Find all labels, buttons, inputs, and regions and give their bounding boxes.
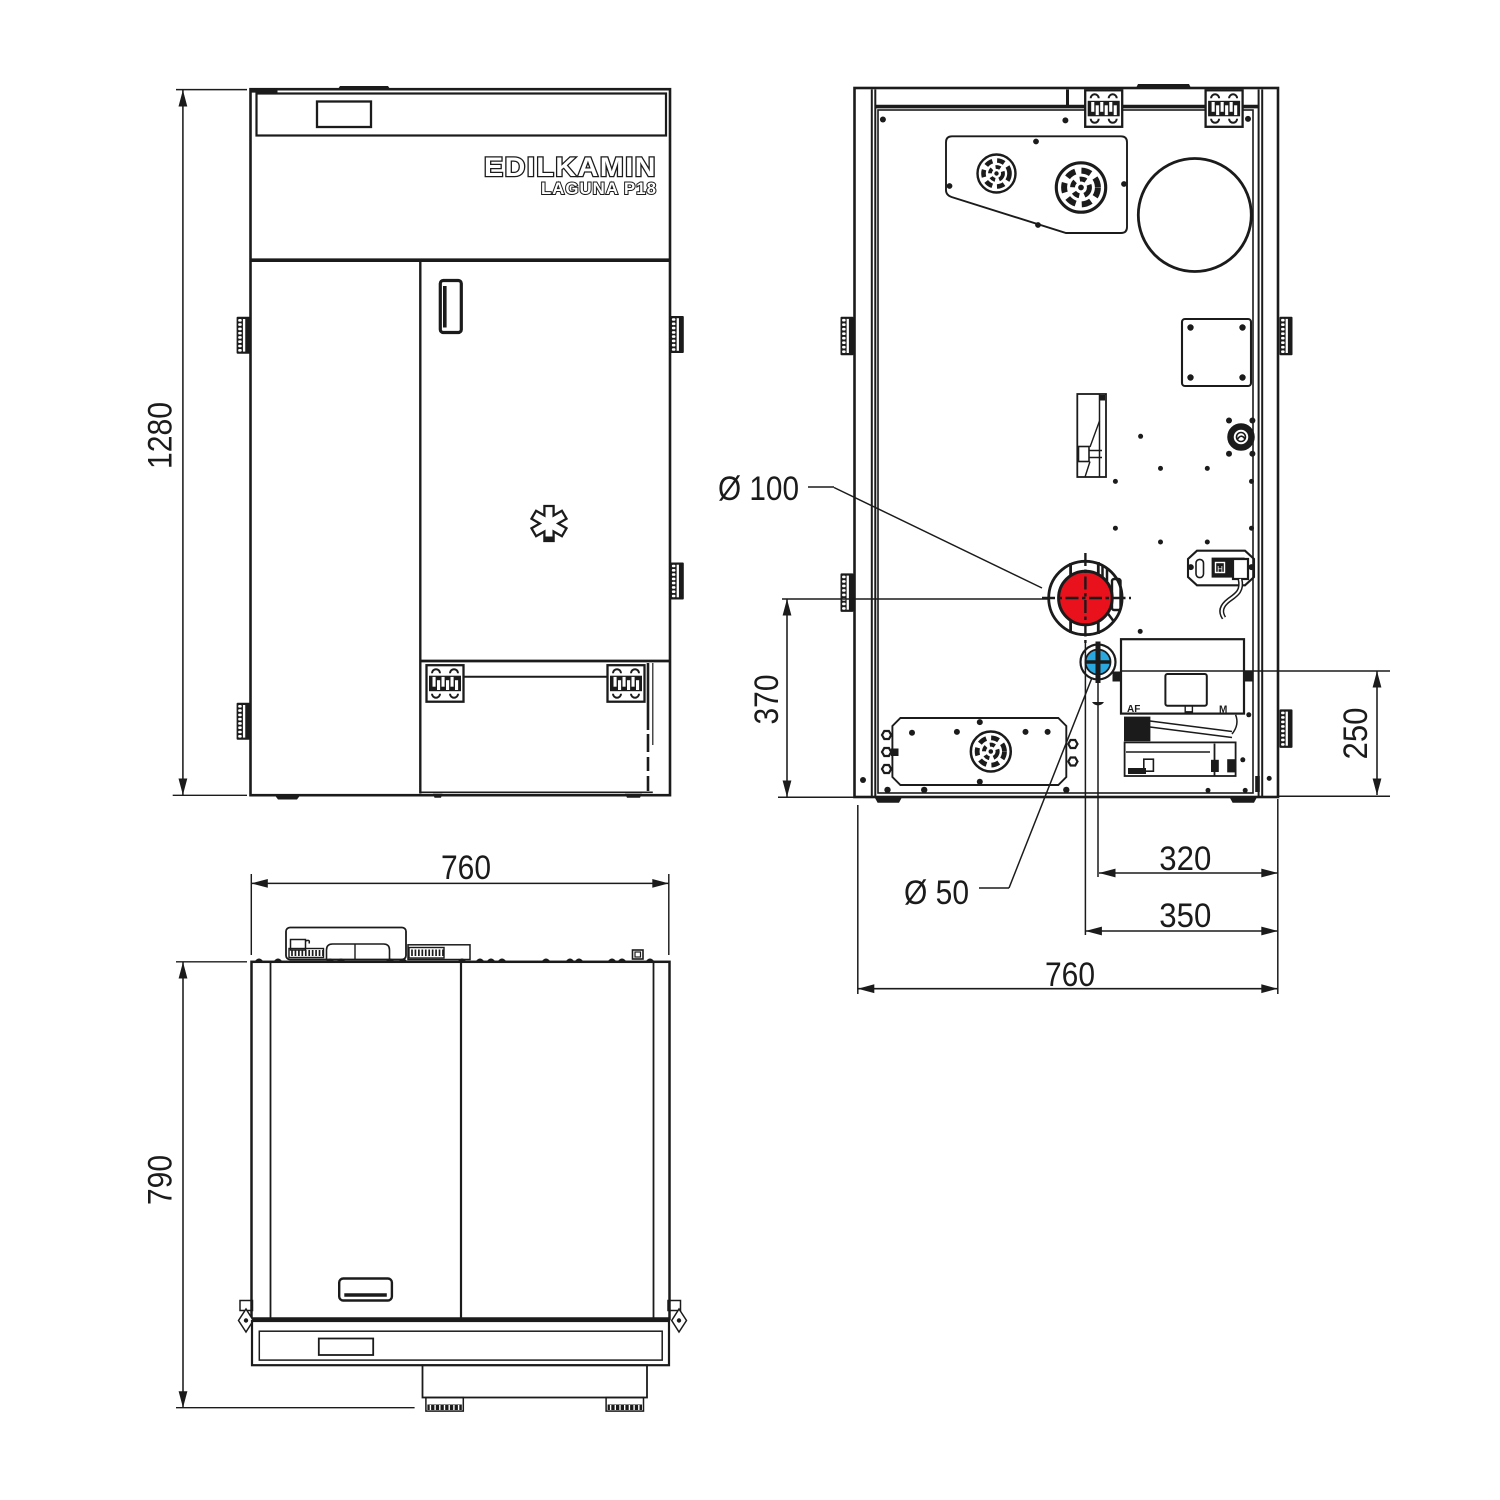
svg-text:760: 760 [441, 849, 491, 887]
svg-text:AF: AF [1127, 704, 1140, 715]
svg-text:250: 250 [1337, 708, 1375, 760]
svg-text:1280: 1280 [142, 402, 180, 469]
svg-text:790: 790 [142, 1155, 180, 1205]
svg-text:350: 350 [1159, 897, 1211, 935]
svg-text:LAGUNA P18: LAGUNA P18 [541, 180, 657, 198]
svg-text:H: H [1217, 565, 1223, 574]
svg-text:M: M [1219, 705, 1227, 716]
svg-text:Ø 50: Ø 50 [904, 874, 969, 912]
svg-text:Ø 100: Ø 100 [718, 470, 799, 508]
svg-text:EDILKAMIN: EDILKAMIN [484, 152, 657, 182]
svg-text:370: 370 [748, 675, 786, 725]
svg-text:320: 320 [1159, 840, 1211, 878]
svg-text:760: 760 [1045, 956, 1095, 994]
